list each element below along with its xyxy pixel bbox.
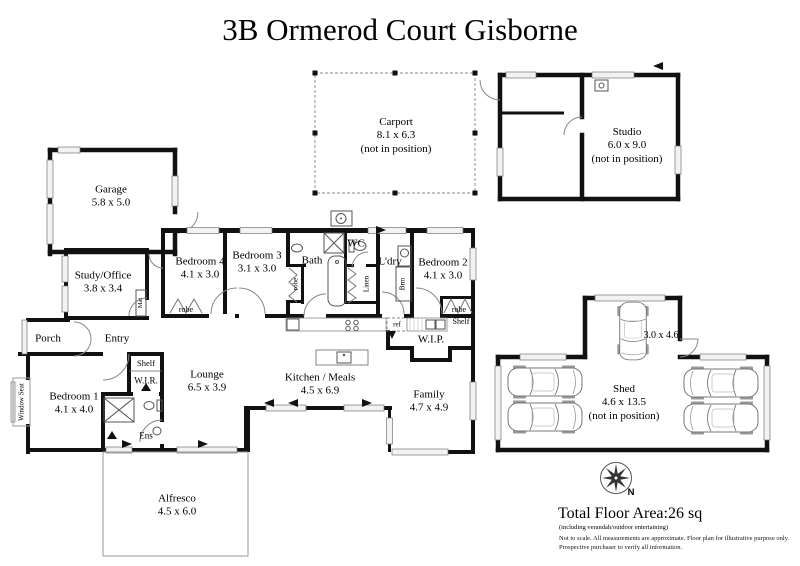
shed-outline bbox=[495, 295, 770, 450]
study-office-name: Study/Office bbox=[75, 270, 132, 283]
total-floor-area: Total Floor Area:26 sq bbox=[558, 505, 702, 523]
carport-dims: 8.1 x 6.3 bbox=[361, 129, 432, 142]
page-title: 3B Ormerod Court Gisborne bbox=[222, 12, 578, 48]
ensuite-label: Ens bbox=[139, 431, 153, 442]
garage-name: Garage bbox=[92, 184, 131, 197]
porch-label: Porch bbox=[35, 332, 61, 345]
shelf-wip-label: Shelf bbox=[453, 317, 470, 327]
linen-label: Linen bbox=[363, 276, 372, 292]
bedroom-4-dims: 4.1 x 3.0 bbox=[175, 269, 224, 282]
broom-label: Brm bbox=[399, 278, 408, 290]
garage-label: Garage 5.8 x 5.0 bbox=[92, 184, 131, 211]
kitchen-meals-label: Kitchen / Meals 4.5 x 6.9 bbox=[285, 372, 355, 399]
garage-dims: 5.8 x 5.0 bbox=[92, 197, 131, 210]
robe-bedroom4-label: robe bbox=[179, 305, 193, 315]
robe-bedroom3-label: robe bbox=[292, 278, 301, 290]
shed-name: Shed bbox=[589, 383, 660, 396]
studio-note: (not in position) bbox=[592, 153, 663, 166]
family-dims: 4.7 x 4.9 bbox=[410, 402, 449, 415]
area-note: (including verandah/outdoor entertaining… bbox=[559, 524, 668, 531]
carport-name: Carport bbox=[361, 116, 432, 129]
bedroom-2-name: Bedroom 2 bbox=[418, 257, 467, 270]
study-office-dims: 3.8 x 3.4 bbox=[75, 283, 132, 296]
carport-note: (not in position) bbox=[361, 143, 432, 156]
disclaimer-line-1: Not to scale. All measurements are appro… bbox=[559, 535, 789, 542]
disclaimer-line-2: Prospective purchaser to verify all info… bbox=[559, 544, 682, 551]
alfresco-label: Alfresco 4.5 x 6.0 bbox=[158, 493, 197, 520]
lounge-label: Lounge 6.5 x 3.9 bbox=[188, 369, 227, 396]
compass-north-label: N bbox=[628, 487, 635, 499]
family-name: Family bbox=[410, 389, 449, 402]
floor-plan-page: 3B Ormerod Court Gisborne Carport 8.1 x … bbox=[0, 0, 800, 566]
alfresco-dims: 4.5 x 6.0 bbox=[158, 506, 197, 519]
wc-label: WC bbox=[347, 237, 365, 250]
entry-label: Entry bbox=[105, 332, 129, 345]
study-office-label: Study/Office 3.8 x 3.4 bbox=[75, 270, 132, 297]
kitchen-meals-dims: 4.5 x 6.9 bbox=[285, 385, 355, 398]
shed-label: Shed 4.6 x 13.5 (not in position) bbox=[589, 383, 660, 423]
studio-name: Studio bbox=[592, 126, 663, 139]
mat-label: Mat bbox=[137, 298, 145, 308]
studio-dims: 6.0 x 9.0 bbox=[592, 139, 663, 152]
fridge-label: ref bbox=[393, 321, 401, 330]
bedroom-3-dims: 3.1 x 3.0 bbox=[232, 263, 281, 276]
shelf-wir-label: Shelf bbox=[137, 358, 155, 368]
shed-note: (not in position) bbox=[589, 410, 660, 423]
bedroom-4-label: Bedroom 4 4.1 x 3.0 bbox=[175, 256, 224, 283]
bedroom-1-label: Bedroom 1 4.1 x 4.0 bbox=[49, 391, 98, 418]
kitchen-meals-name: Kitchen / Meals bbox=[285, 372, 355, 385]
window-seat-label: Window Seat bbox=[18, 383, 27, 421]
bedroom-1-dims: 4.1 x 4.0 bbox=[49, 404, 98, 417]
wip-label: W.I.P. bbox=[418, 333, 444, 346]
bedroom-3-label: Bedroom 3 3.1 x 3.0 bbox=[232, 250, 281, 277]
bedroom-3-name: Bedroom 3 bbox=[232, 250, 281, 263]
bedroom-2-label: Bedroom 2 4.1 x 3.0 bbox=[418, 257, 467, 284]
lounge-dims: 6.5 x 3.9 bbox=[188, 382, 227, 395]
shed-dims: 4.6 x 13.5 bbox=[589, 396, 660, 409]
bedroom-1-name: Bedroom 1 bbox=[49, 391, 98, 404]
shed-annex-dims-label: 3.0 x 4.6 bbox=[644, 330, 679, 342]
alfresco-name: Alfresco bbox=[158, 493, 197, 506]
bath-label: Bath bbox=[302, 254, 323, 267]
laundry-label: L'dry bbox=[378, 255, 401, 268]
family-label: Family 4.7 x 4.9 bbox=[410, 389, 449, 416]
carport-label: Carport 8.1 x 6.3 (not in position) bbox=[361, 116, 432, 156]
studio-label: Studio 6.0 x 9.0 (not in position) bbox=[592, 126, 663, 166]
bedroom-2-dims: 4.1 x 3.0 bbox=[418, 270, 467, 283]
lounge-name: Lounge bbox=[188, 369, 227, 382]
bedroom-4-name: Bedroom 4 bbox=[175, 256, 224, 269]
robe-bedroom2-label: robe bbox=[452, 305, 466, 315]
wir-label: W.I.R. bbox=[134, 376, 157, 387]
